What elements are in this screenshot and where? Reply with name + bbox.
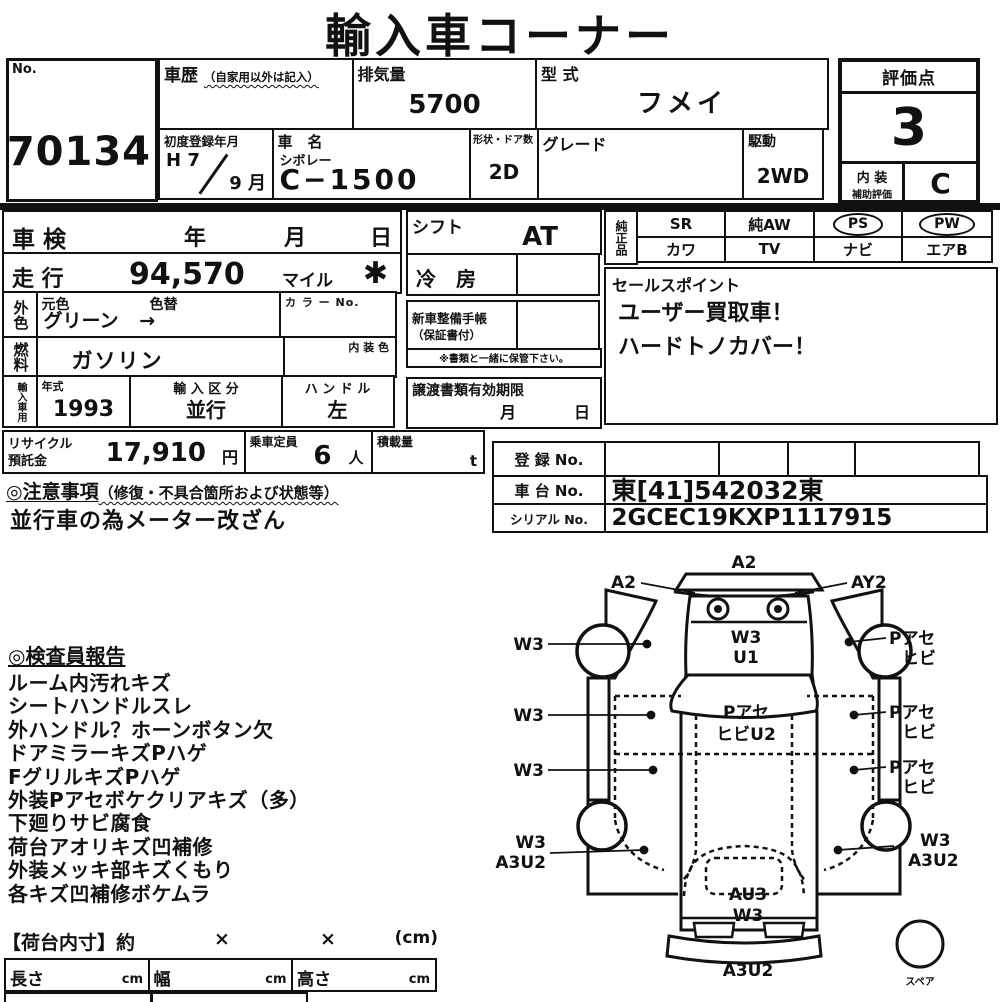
caution-subtitle: （修復・不具合箇所および状態等） [99, 484, 339, 502]
transfer-day: 日 [574, 399, 590, 423]
reg-no-cell-1 [604, 441, 721, 477]
damage-windshield-2: ヒビU2 [716, 725, 776, 745]
bed-length-unit: cm [122, 972, 143, 987]
displacement-value: 5700 [354, 90, 536, 120]
capacity-cell: 乗車定員 6 人 [244, 430, 374, 474]
transfer-doc-box: 譲渡書類有効期限 月 日 [406, 377, 602, 429]
equip-pw: PW [901, 210, 993, 238]
bed-dims-header: 【荷台内寸】約 × × (cm) [2, 926, 440, 956]
registration-table: 登 録 No. 車 台 No. 東[41]542032東 シリアル No. 2G… [492, 441, 988, 533]
inspector-report-header: ◎検査員報告 [8, 640, 310, 669]
transfer-doc-label: 譲渡書類有効期限 [412, 380, 524, 400]
caution-line: 並行車の為メーター改ざん [10, 503, 286, 535]
damage-right-3b: ヒビ [902, 778, 936, 798]
fuel-value: ガソリン [72, 345, 164, 375]
damage-rear-right-1: W3 [920, 831, 951, 851]
sales-point-box: セールスポイント ユーザー買取車！ ハードトノカバー！ [604, 267, 998, 425]
damage-bed-1: AU3 [729, 885, 767, 905]
shift-value: AT [522, 222, 558, 252]
damage-left-2: W3 [513, 706, 544, 726]
bed-dims-unit: (cm) [395, 928, 438, 948]
auction-no-label: No. [12, 62, 37, 77]
first-reg-slash [198, 153, 228, 194]
drive-value: 2WD [744, 164, 822, 188]
shaken-row: 車 検 年 月 日 [2, 210, 402, 254]
damage-rear-left-2: A3U2 [495, 853, 546, 873]
history-note: （自家用以外は記入） [204, 70, 319, 84]
displacement-label: 排気量 [358, 61, 406, 85]
history-cell: 車歴 （自家用以外は記入） [158, 58, 354, 130]
mileage-unit: マイル [282, 266, 333, 291]
damage-right-2a: Pアセ [889, 703, 935, 723]
grade-cell: グレード [537, 128, 745, 200]
shaken-day: 日 [370, 220, 392, 252]
score-value: 3 [842, 94, 976, 164]
reg-no-label: 登 録 No. [492, 441, 606, 477]
damage-hood-2: U1 [733, 648, 759, 668]
exterior-color-head: 外色 [2, 291, 38, 338]
serial-no-value: 2GCEC19KXP1117915 [604, 503, 988, 533]
genuine-equipment-table: 純正品 SR 純AW PS PW カワ TV ナビ エアB [604, 210, 993, 263]
interior-grade-value: C [905, 164, 976, 203]
mileage-label: 走 行 [12, 261, 64, 293]
bed-height-unit: cm [409, 972, 430, 987]
caution-header: ◎注意事項（修復・不具合箇所および状態等） [6, 477, 339, 504]
first-reg-label: 初度登録年月 [164, 131, 239, 150]
bed-width-cell: 幅 cm [148, 958, 294, 992]
damage-front-right: AY2 [851, 573, 887, 593]
section-divider [0, 203, 1000, 210]
shift-ac-box: シフト AT 冷 房 [406, 210, 602, 296]
bed-dims-title: 【荷台内寸】約 [2, 928, 135, 955]
bed-dims-table: 長さ cm 幅 cm 高さ cm [4, 958, 437, 992]
capacity-value: 6 [313, 441, 331, 471]
shift-cell: シフト AT [406, 210, 602, 255]
inspection-item: ルーム内汚れキズ [8, 672, 310, 695]
drive-cell: 駆動 2WD [742, 128, 824, 200]
transfer-month: 月 [500, 399, 516, 423]
damage-left-3: W3 [513, 761, 544, 781]
color-no-label: カ ラ ー No. [285, 294, 359, 310]
equip-navi: ナビ [813, 236, 904, 263]
recycle-value: 17,910 [106, 438, 206, 468]
damage-rear-left-1: W3 [515, 833, 546, 853]
mileage-asterisk: ✱ [363, 256, 388, 291]
equip-ps: PS [813, 210, 904, 238]
reg-no-cell-2 [718, 441, 789, 477]
reg-no-cell-3 [787, 441, 857, 477]
car-name-label: 車 名 [278, 131, 323, 152]
car-model-name: C−1500 [280, 163, 420, 196]
shaken-year: 年 [184, 220, 206, 252]
shaken-month: 月 [284, 220, 306, 252]
sales-point-line2: ハードトノカバー！ [618, 329, 816, 361]
interior-color-cell: 内 装 色 [283, 336, 397, 378]
recycle-row: リサイクル 預託金 17,910 円 乗車定員 6 人 積載量 t [2, 430, 485, 474]
ac-value-cell [516, 253, 600, 296]
first-reg-month: 9 月 [229, 169, 266, 195]
first-reg-year: H 7 [166, 150, 200, 171]
auction-no-box: No. 70134 [6, 58, 158, 202]
sales-point-line1: ユーザー買取車！ [618, 295, 794, 327]
drive-label: 駆動 [748, 131, 776, 151]
capacity-label: 乗車定員 [250, 433, 298, 450]
page-title: 輸入車コーナー [0, 0, 1000, 66]
spare-tire-label: スペア [905, 976, 934, 988]
shift-label: シフト [412, 213, 463, 238]
recycle-cell: リサイクル 預託金 17,910 円 [2, 430, 246, 474]
bed-width-label: 幅 [154, 965, 171, 990]
damage-rear-bumper: A3U2 [723, 961, 774, 981]
bed-height-cell: 高さ cm [291, 958, 437, 992]
recycle-label-2: 預託金 [8, 450, 47, 469]
bed-dims-partial-row [4, 992, 308, 1002]
service-book-label-cell: 新車整備手帳 （保証書付） [406, 300, 518, 350]
inspection-item: 下廻りサビ腐食 [8, 812, 310, 835]
caution-title: ◎注意事項 [6, 481, 99, 503]
displacement-cell: 排気量 5700 [352, 58, 538, 130]
score-box: 評価点 3 内 装 補助評価 C [838, 58, 980, 204]
vehicle-damage-diagram: A2 A2 AY2 W3 U1 Pアセ ヒビU2 W3 W3 W3 W3 A3U… [488, 552, 1000, 1000]
ac-label: 冷 房 [416, 263, 476, 292]
handle-cell: ハ ン ド ル 左 [281, 375, 395, 428]
keep-note-cell: ※書類と一緒に保管下さい。 [406, 348, 602, 368]
sales-point-label: セールスポイント [612, 272, 740, 296]
inspector-report: ◎検査員報告 ルーム内汚れキズ シートハンドルスレ 外ハンドル？ホーンボタン欠 … [8, 640, 310, 906]
doors-cell: 形状・ドア数 2D [469, 128, 539, 200]
bed-dims-times1: × [214, 928, 230, 950]
equip-sr: SR [636, 210, 727, 238]
import-type-cell: 輸 入 区 分 並行 [129, 375, 283, 428]
interior-color-label: 内 装 色 [348, 339, 389, 355]
history-label: 車歴 [164, 66, 198, 86]
chassis-no-value: 東[41]542032東 [604, 475, 988, 506]
genuine-label: 純正品 [604, 210, 638, 265]
vehicle-detail-table: 車 検 年 月 日 走 行 94,570 マイル ✱ 外色 元色 色替 グリーン… [2, 210, 402, 428]
bed-length-cell: 長さ cm [4, 958, 150, 992]
repaint-arrow: → [139, 310, 155, 332]
inspection-item: 荷台アオリキズ凹補修 [8, 836, 310, 859]
car-name-cell: 車 名 シボレー C−1500 [272, 128, 472, 200]
payload-label: 積載量 [377, 433, 413, 450]
score-label: 評価点 [842, 62, 976, 94]
model-code-cell: 型 式 フメイ [535, 58, 829, 130]
ac-label-cell: 冷 房 [406, 253, 518, 296]
fuel-cell: ガソリン [36, 336, 286, 378]
capacity-unit: 人 [348, 447, 363, 468]
spare-tire [897, 921, 943, 967]
grade-label: グレード [543, 131, 607, 155]
model-year-label: 年式 [42, 378, 64, 394]
model-code-label: 型 式 [541, 61, 579, 85]
damage-left-1: W3 [513, 635, 544, 655]
inspection-item: 各キズ凹補修ボケムラ [8, 883, 310, 906]
damage-right-3a: Pアセ [889, 758, 935, 778]
damage-hood-1: W3 [731, 628, 762, 648]
inspection-item: シートハンドルスレ [8, 695, 310, 718]
vehicle-header-table: 車歴 （自家用以外は記入） 排気量 5700 型 式 フメイ 初度登録年月 H … [158, 58, 829, 200]
damage-right-2b: ヒビ [902, 723, 936, 743]
color-no-cell: カ ラ ー No. [279, 291, 397, 338]
damage-bed-2: W3 [733, 906, 764, 926]
chassis-no-label: 車 台 No. [492, 475, 606, 506]
doors-value: 2D [471, 160, 537, 184]
payload-cell: 積載量 t [371, 430, 485, 474]
interior-grade-label: 内 装 補助評価 [842, 164, 905, 203]
damage-right-1b: ヒビ [902, 649, 936, 669]
bed-length-label: 長さ [10, 965, 44, 990]
service-book-value-cell [516, 300, 600, 350]
recycle-unit: 円 [222, 444, 238, 468]
shaken-label: 車 検 [12, 220, 66, 254]
exterior-color-cell: 元色 色替 グリーン → [36, 291, 282, 338]
model-code-value: フメイ [537, 83, 827, 120]
inspection-item: ドアミラーキズPハゲ [8, 742, 310, 765]
inspection-item: 外装Pアセボケクリアキズ（多） [8, 789, 310, 812]
bed-dims-times2: × [320, 928, 336, 950]
damage-windshield-1: Pアセ [723, 703, 769, 723]
import-type-value: 並行 [131, 394, 281, 423]
model-year-cell: 年式 1993 [36, 375, 132, 428]
service-book-box: 新車整備手帳 （保証書付） ※書類と一緒に保管下さい。 [406, 300, 602, 368]
inspection-item: 外ハンドル？ホーンボタン欠 [8, 719, 310, 742]
fuel-head: 燃料 [2, 336, 38, 378]
payload-unit: t [470, 452, 477, 470]
bed-height-label: 高さ [297, 965, 331, 990]
inspection-item: FグリルキズPハゲ [8, 766, 310, 789]
model-year-value: 1993 [38, 397, 130, 422]
exterior-color-value: グリーン [44, 310, 119, 332]
equip-aw: 純AW [724, 210, 815, 238]
auction-no-value: 70134 [7, 129, 151, 175]
damage-rear-right-2: A3U2 [908, 851, 959, 871]
reg-no-cell-4 [854, 441, 980, 477]
handle-value: 左 [283, 394, 393, 423]
equip-tv: TV [724, 236, 815, 263]
inspection-item: 外装メッキ部キズくもり [8, 859, 310, 882]
equip-kawa: カワ [636, 236, 727, 263]
service-book-note: （保証書付） [412, 327, 516, 343]
doors-label: 形状・ドア数 [473, 131, 533, 146]
bed-width-unit: cm [265, 972, 286, 987]
first-reg-cell: 初度登録年月 H 7 9 月 [158, 128, 274, 200]
equip-airb: エアB [901, 236, 993, 263]
mileage-row: 走 行 94,570 マイル ✱ [2, 252, 402, 294]
mileage-value: 94,570 [129, 257, 245, 292]
import-head: 輸入車用 [2, 375, 38, 428]
damage-right-1a: Pアセ [889, 629, 935, 649]
damage-front-left: A2 [611, 573, 636, 593]
damage-front-center: A2 [732, 553, 757, 573]
serial-no-label: シリアル No. [492, 503, 606, 533]
service-book-label: 新車整備手帳 [412, 308, 516, 327]
